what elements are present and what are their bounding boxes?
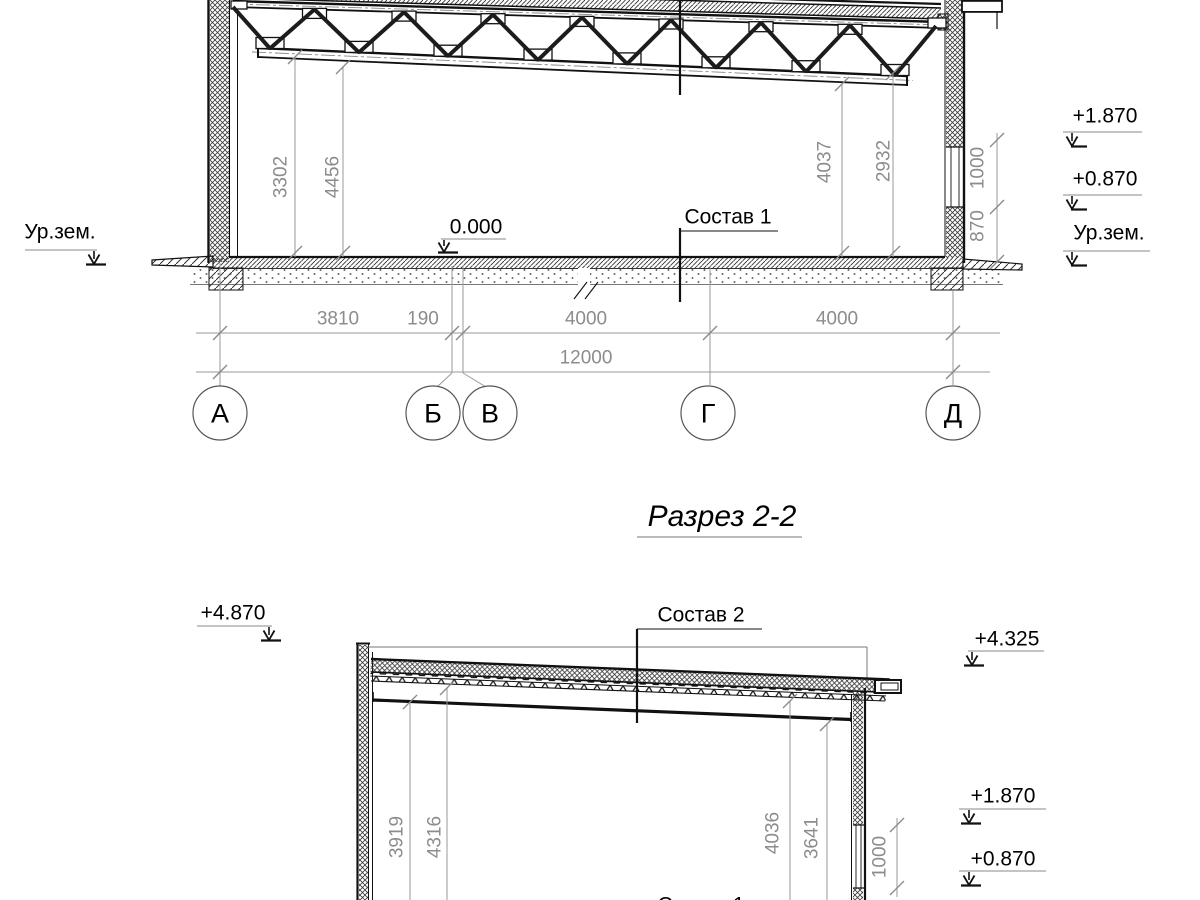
left-apron (152, 256, 213, 267)
dim-2932: 2932 (875, 140, 894, 182)
level-mark-icon (959, 871, 1046, 886)
level-mark-icon (1063, 251, 1150, 266)
level-label-4325: +4.325 (975, 629, 1040, 650)
dim-3302: 3302 (272, 156, 291, 198)
dim-3919: 3919 (388, 816, 407, 858)
left-foundation (209, 268, 243, 290)
parapet-cap (962, 1, 1002, 12)
truss-web (233, 7, 936, 76)
dim-4037: 4037 (816, 141, 835, 183)
break-gap (578, 268, 590, 292)
dim-4316: 4316 (426, 816, 445, 858)
level-mark-icon (197, 626, 281, 641)
vertical-dim-lines-2 (403, 681, 904, 900)
axis-bubble-v: В (481, 401, 499, 428)
level-label-4870: +4.870 (201, 603, 266, 624)
axis-circles (193, 386, 980, 440)
composition-1-label: Состав 1 (684, 207, 771, 228)
ground-level-label-right: Ур.зем. (1073, 223, 1144, 244)
section-drawing-linework (0, 0, 1200, 900)
dim-190: 190 (407, 310, 439, 329)
right-apron (963, 259, 1022, 270)
zero-level-label: 0.000 (450, 217, 503, 238)
dim-1000-bottom: 1000 (871, 836, 890, 878)
right-wall-2 (852, 688, 866, 900)
level-marks-bottom (197, 626, 1046, 886)
dim-3810: 3810 (317, 310, 359, 329)
level-mark-icon (438, 239, 506, 253)
level-mark-icon (964, 651, 1044, 666)
dim-4456: 4456 (324, 156, 343, 198)
level-mark-icon (1063, 132, 1142, 147)
sloped-roof (370, 659, 901, 722)
dim-4000-b: 4000 (816, 310, 858, 329)
axis-bubble-a: А (211, 401, 229, 428)
level-label-1870-top: +1.870 (1073, 106, 1138, 127)
axis-bubble-b: Б (424, 401, 442, 428)
floor-slab (152, 256, 1022, 299)
level-mark-icon (1063, 195, 1142, 210)
roof-beam (373, 700, 851, 720)
level-label-0870-bottom: +0.870 (971, 849, 1036, 870)
left-wall-2 (356, 643, 373, 900)
level-label-0870-top: +0.870 (1073, 169, 1138, 190)
dim-4000-a: 4000 (565, 310, 607, 329)
dim-870: 870 (969, 210, 988, 242)
top-section (25, 0, 1150, 537)
roof-edge-detail (875, 680, 901, 693)
level-mark-icon (25, 250, 106, 265)
axis-bubble-g: Г (701, 401, 716, 428)
dim-1000-top: 1000 (969, 147, 988, 189)
left-wall (209, 0, 238, 263)
drawing-sheet: Ур.зем. 0.000 Состав 1 +1.870 +0.870 Ур.… (0, 0, 1200, 900)
dim-3641: 3641 (803, 817, 822, 859)
ground-level-label-left: Ур.зем. (24, 222, 95, 243)
composition-1-label-bottom: Состав 1 (657, 895, 744, 900)
level-mark-icon (959, 809, 1046, 824)
axis-bubble-d: Д (944, 401, 962, 428)
dim-4036: 4036 (764, 812, 783, 854)
drawing-title: Разрез 2-2 (648, 502, 797, 532)
bottom-section (197, 626, 1046, 900)
level-label-1870-bottom: +1.870 (971, 786, 1036, 807)
composition-2-label: Состав 2 (657, 605, 744, 626)
dim-12000: 12000 (560, 349, 613, 368)
vertical-dim-lines (288, 50, 1004, 269)
right-foundation (931, 268, 963, 290)
